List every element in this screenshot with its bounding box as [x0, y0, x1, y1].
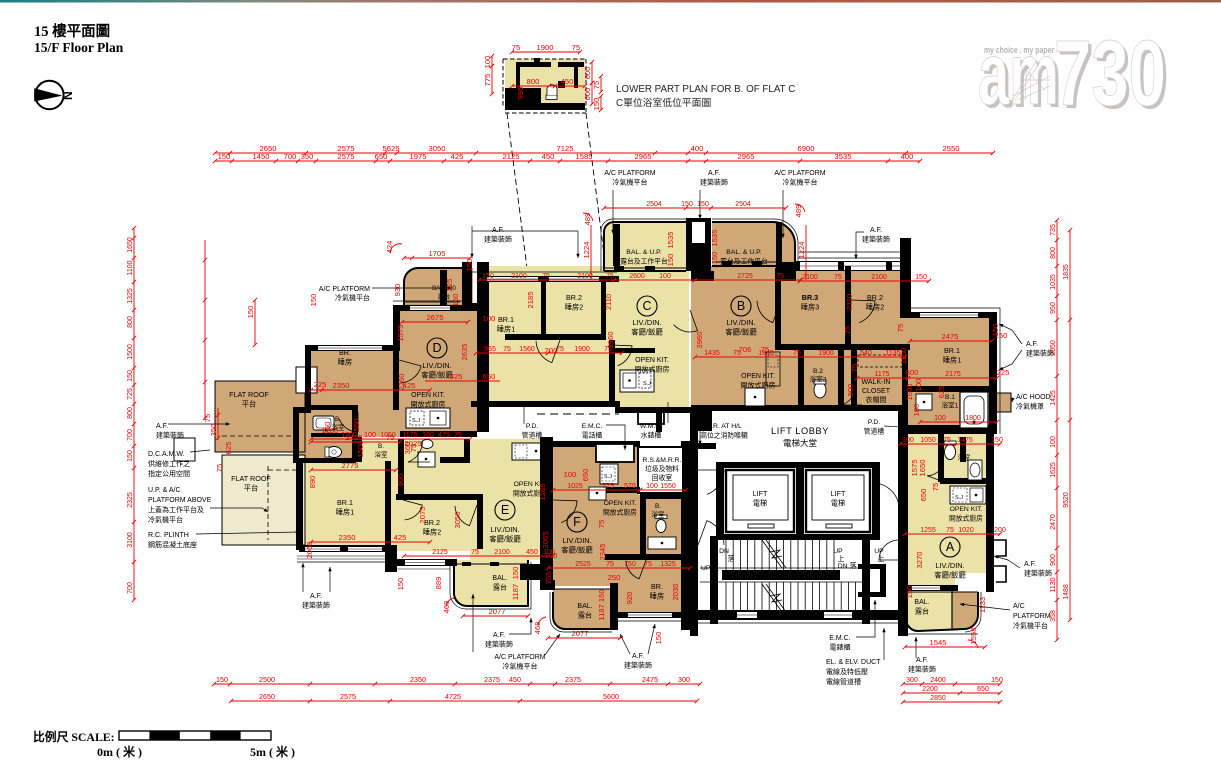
- svg-text:800: 800: [527, 77, 540, 86]
- svg-text:A.F.: A.F.: [708, 170, 720, 177]
- svg-text:2100: 2100: [577, 273, 593, 280]
- svg-text:am: am: [978, 24, 1059, 123]
- svg-text:1535: 1535: [710, 230, 719, 247]
- svg-text:900: 900: [846, 384, 855, 397]
- svg-text:露台: 露台: [915, 606, 929, 615]
- svg-text:回收室: 回收室: [652, 473, 673, 482]
- svg-text:冷氣機平台: 冷氣機平台: [503, 661, 538, 670]
- svg-text:1488: 1488: [1063, 584, 1070, 600]
- svg-text:A.F.: A.F.: [156, 423, 168, 430]
- svg-text:2325: 2325: [127, 492, 134, 508]
- svg-text:450: 450: [509, 675, 521, 684]
- svg-text:冷氣機平台: 冷氣機平台: [148, 515, 183, 524]
- svg-text:700: 700: [127, 582, 134, 594]
- svg-text:2077: 2077: [572, 629, 589, 638]
- svg-text:150: 150: [915, 274, 927, 281]
- svg-text:2110: 2110: [604, 294, 613, 310]
- svg-text:BR.: BR.: [339, 348, 351, 357]
- svg-text:電線管道槽: 電線管道槽: [826, 677, 861, 686]
- svg-text:LIV./DIN.: LIV./DIN.: [562, 536, 591, 545]
- svg-text:225: 225: [445, 279, 454, 292]
- svg-text:2100: 2100: [871, 274, 887, 281]
- svg-text:建築裝飾: 建築裝飾: [862, 234, 890, 243]
- svg-text:E: E: [501, 503, 509, 517]
- svg-text:落: 落: [728, 554, 735, 563]
- svg-text:75: 75: [203, 414, 212, 422]
- svg-text:150: 150: [309, 294, 318, 307]
- svg-text:1050: 1050: [920, 437, 936, 444]
- svg-text:2100: 2100: [802, 274, 818, 281]
- svg-text:2675: 2675: [427, 313, 444, 322]
- svg-text:1325: 1325: [127, 288, 134, 304]
- svg-text:600: 600: [583, 67, 592, 80]
- svg-text:1133: 1133: [978, 597, 987, 613]
- svg-text:75: 75: [834, 274, 842, 281]
- svg-text:2175: 2175: [945, 371, 961, 378]
- svg-text:A.F.: A.F.: [870, 227, 882, 234]
- svg-text:FLAT ROOF: FLAT ROOF: [229, 390, 269, 399]
- svg-text:150: 150: [511, 567, 520, 580]
- svg-text:LIFT: LIFT: [831, 489, 846, 498]
- svg-text:D.C.A.M.W.: D.C.A.M.W.: [148, 451, 185, 458]
- svg-text:100: 100: [646, 483, 658, 490]
- svg-text:2375: 2375: [484, 675, 500, 684]
- svg-text:B.1: B.1: [945, 394, 955, 401]
- svg-text:2075: 2075: [418, 507, 427, 524]
- svg-text:A: A: [946, 540, 955, 554]
- svg-text:1325: 1325: [660, 561, 676, 568]
- svg-text:平台: 平台: [244, 483, 258, 492]
- svg-text:625: 625: [937, 386, 946, 399]
- svg-text:A.F.: A.F.: [310, 593, 322, 600]
- svg-text:1425: 1425: [1050, 390, 1057, 406]
- svg-text:B: B: [737, 299, 745, 313]
- svg-text:2504: 2504: [735, 201, 751, 208]
- svg-text:2030: 2030: [671, 584, 680, 601]
- svg-text:A/C: A/C: [1013, 603, 1025, 610]
- svg-text:S.J: S.J: [412, 418, 420, 424]
- svg-text:浴室: 浴室: [652, 509, 665, 518]
- svg-text:2725: 2725: [737, 273, 753, 280]
- svg-text:9520: 9520: [1063, 492, 1070, 508]
- svg-text:920: 920: [625, 592, 634, 605]
- svg-text:BR.1: BR.1: [498, 315, 514, 324]
- svg-text:1175: 1175: [874, 371, 889, 378]
- svg-text:S.J: S.J: [955, 495, 963, 501]
- svg-text:1835: 1835: [1063, 264, 1070, 280]
- svg-text:管道槽: 管道槽: [522, 430, 543, 439]
- svg-text:建築裝飾: 建築裝飾: [1024, 568, 1052, 577]
- svg-text:150: 150: [905, 586, 914, 599]
- svg-text:75: 75: [604, 346, 612, 353]
- svg-text:1650: 1650: [127, 237, 134, 253]
- svg-text:BAL. & U.P.: BAL. & U.P.: [726, 249, 761, 256]
- svg-text:400: 400: [901, 152, 914, 161]
- svg-text:電錶櫃: 電錶櫃: [830, 642, 851, 651]
- svg-text:上蓋為工作平台及: 上蓋為工作平台及: [148, 505, 204, 514]
- svg-text:1550: 1550: [660, 483, 676, 490]
- svg-text:R.S.&M.R.R.: R.S.&M.R.R.: [643, 457, 682, 464]
- svg-text:2050: 2050: [1050, 340, 1057, 356]
- svg-text:露台及工作平台: 露台及工作平台: [620, 256, 668, 265]
- svg-text:2575: 2575: [338, 152, 355, 161]
- svg-text:965: 965: [484, 346, 496, 353]
- svg-text:睡房3: 睡房3: [801, 302, 819, 311]
- svg-text:LIV./DIN.: LIV./DIN.: [632, 318, 661, 327]
- svg-text:100: 100: [483, 314, 496, 323]
- svg-text:F: F: [573, 515, 581, 529]
- svg-text:4725: 4725: [445, 692, 461, 701]
- svg-text:露台: 露台: [578, 610, 592, 619]
- svg-text:450: 450: [561, 77, 574, 86]
- svg-text:建築裝飾: 建築裝飾: [302, 600, 330, 609]
- svg-text:925: 925: [450, 372, 463, 381]
- svg-text:75: 75: [943, 437, 951, 444]
- svg-text:浴室2: 浴室2: [810, 375, 827, 384]
- svg-text:E.M.C.: E.M.C.: [829, 635, 850, 642]
- svg-text:890: 890: [308, 476, 317, 489]
- svg-text:900: 900: [396, 474, 405, 487]
- svg-text:2350: 2350: [333, 381, 350, 390]
- svg-text:489: 489: [583, 213, 592, 226]
- svg-text:BAL.: BAL.: [577, 603, 592, 610]
- svg-text:客廳/飯廳: 客廳/飯廳: [561, 545, 593, 554]
- svg-text:2077: 2077: [489, 607, 506, 616]
- svg-text:1500: 1500: [356, 441, 365, 458]
- svg-text:358: 358: [1050, 610, 1057, 622]
- svg-text:電梯: 電梯: [831, 499, 845, 508]
- svg-text:開放式廚房: 開放式廚房: [741, 380, 776, 389]
- svg-text:424: 424: [385, 241, 394, 254]
- svg-text:75: 75: [761, 345, 769, 354]
- svg-text:U.P. & A/C: U.P. & A/C: [148, 487, 181, 494]
- svg-text:P.D.: P.D.: [868, 419, 880, 426]
- svg-text:3050: 3050: [429, 144, 446, 153]
- svg-text:LIV./DIN.: LIV./DIN.: [490, 525, 519, 534]
- svg-text:75: 75: [606, 273, 614, 280]
- svg-text:FLAT ROOF: FLAT ROOF: [231, 474, 271, 483]
- svg-text:650: 650: [977, 686, 989, 693]
- svg-text:1575: 1575: [396, 325, 405, 342]
- svg-text:供維修工作之: 供維修工作之: [148, 459, 190, 468]
- svg-text:450: 450: [526, 549, 538, 556]
- svg-text:OPEN KIT.: OPEN KIT.: [950, 506, 983, 513]
- svg-text:客廳/飯廳: 客廳/飯廳: [489, 534, 521, 543]
- svg-text:D: D: [432, 341, 441, 355]
- svg-text:1035: 1035: [1050, 274, 1057, 290]
- svg-text:開放式廚房: 開放式廚房: [603, 507, 637, 516]
- svg-text:706: 706: [739, 345, 752, 354]
- svg-text:1900: 1900: [818, 350, 834, 357]
- svg-text:建築裝飾: 建築裝飾: [485, 639, 513, 648]
- svg-text:1545: 1545: [930, 638, 947, 647]
- svg-text:2525: 2525: [575, 561, 591, 568]
- svg-text:1700: 1700: [322, 426, 339, 435]
- svg-text:2060: 2060: [305, 542, 314, 559]
- svg-text:650: 650: [581, 469, 590, 482]
- svg-text:75: 75: [896, 324, 905, 332]
- svg-text:1625: 1625: [1050, 462, 1057, 478]
- svg-text:1800: 1800: [965, 415, 981, 422]
- svg-text:DN 落: DN 落: [838, 561, 857, 570]
- svg-text:150: 150: [681, 201, 693, 208]
- svg-text:100: 100: [422, 432, 434, 439]
- svg-text:A.F.: A.F.: [493, 632, 505, 639]
- svg-text:150: 150: [216, 675, 228, 684]
- svg-text:睡房1: 睡房1: [497, 324, 515, 333]
- svg-text:OPEN KIT.: OPEN KIT.: [741, 373, 775, 380]
- svg-text:R.C. PLINTH: R.C. PLINTH: [148, 532, 189, 539]
- svg-text:UP: UP: [833, 548, 843, 555]
- svg-text:LIV./DIN.: LIV./DIN.: [726, 318, 755, 327]
- svg-text:75: 75: [597, 520, 606, 528]
- svg-text:H.R. AT H/L: H.R. AT H/L: [706, 423, 742, 430]
- svg-text:150: 150: [127, 450, 134, 462]
- svg-text:管道槽: 管道槽: [864, 426, 885, 435]
- svg-text:上: 上: [838, 554, 845, 563]
- svg-text:2475: 2475: [942, 332, 959, 341]
- svg-text:EL. & ELV. DUCT: EL. & ELV. DUCT: [826, 659, 881, 666]
- svg-text:2125: 2125: [503, 152, 520, 161]
- svg-text:1705: 1705: [429, 249, 446, 258]
- svg-text:垃圾及物料: 垃圾及物料: [645, 464, 679, 473]
- svg-text:A/C PLATFORM: A/C PLATFORM: [774, 170, 825, 177]
- svg-text:5600: 5600: [603, 692, 619, 701]
- svg-text:2200: 2200: [922, 686, 938, 693]
- svg-text:75: 75: [776, 273, 784, 280]
- svg-text:A/C PLATFORM: A/C PLATFORM: [494, 654, 545, 661]
- svg-text:100: 100: [564, 470, 577, 479]
- svg-text:150: 150: [482, 273, 494, 280]
- svg-text:1558: 1558: [969, 628, 978, 645]
- svg-text:150: 150: [465, 259, 474, 272]
- svg-text:1435: 1435: [704, 350, 720, 357]
- svg-text:100: 100: [659, 273, 671, 280]
- svg-text:1025: 1025: [567, 483, 583, 490]
- svg-text:冷氣機罩: 冷氣機罩: [1016, 401, 1044, 410]
- svg-text:75: 75: [503, 346, 511, 353]
- svg-text:800: 800: [127, 316, 134, 328]
- svg-text:489: 489: [794, 205, 803, 218]
- svg-text:2850: 2850: [930, 695, 946, 702]
- svg-text:100: 100: [1050, 436, 1057, 448]
- svg-text:75: 75: [542, 273, 550, 280]
- svg-text:2965: 2965: [738, 152, 755, 161]
- svg-text:DN: DN: [719, 548, 729, 555]
- svg-text:225: 225: [997, 368, 1010, 377]
- svg-text:開放式廚房: 開放式廚房: [411, 399, 446, 408]
- svg-text:建築裝飾: 建築裝飾: [700, 177, 728, 186]
- svg-text:900: 900: [1050, 554, 1057, 566]
- svg-text:350: 350: [209, 424, 218, 437]
- svg-text:1650: 1650: [918, 460, 927, 477]
- svg-text:2375: 2375: [565, 675, 581, 684]
- svg-text:浴室: 浴室: [375, 449, 388, 458]
- svg-text:S.J: S.J: [604, 474, 612, 480]
- svg-text:75: 75: [512, 43, 520, 52]
- svg-text:1900: 1900: [537, 43, 554, 52]
- svg-text:露台及工作平台: 露台及工作平台: [720, 256, 768, 265]
- svg-text:425: 425: [394, 533, 407, 542]
- svg-text:2600: 2600: [629, 273, 645, 280]
- svg-text:3050: 3050: [453, 512, 462, 529]
- svg-text:PLATFORM ABOVE: PLATFORM ABOVE: [148, 497, 212, 504]
- svg-text:露台: 露台: [438, 293, 450, 301]
- svg-text:468: 468: [442, 601, 451, 614]
- svg-text:A/C PLATFORM: A/C PLATFORM: [319, 286, 370, 293]
- svg-text:睡房: 睡房: [650, 591, 664, 600]
- svg-text:650: 650: [919, 489, 928, 502]
- svg-text:100: 100: [934, 415, 946, 422]
- svg-text:N: N: [61, 91, 75, 100]
- svg-text:建築裝飾: 建築裝飾: [156, 430, 184, 439]
- svg-text:2775: 2775: [342, 461, 359, 470]
- svg-text:B.: B.: [961, 446, 967, 453]
- svg-text:150: 150: [396, 578, 405, 591]
- svg-text:75: 75: [471, 549, 479, 556]
- svg-text:425: 425: [451, 152, 464, 161]
- svg-text:1224: 1224: [582, 242, 591, 259]
- svg-text:150: 150: [697, 201, 709, 208]
- svg-text:800: 800: [906, 368, 919, 377]
- svg-text:A.F.: A.F.: [916, 657, 928, 664]
- svg-text:2470: 2470: [1050, 514, 1057, 530]
- svg-text:75: 75: [843, 326, 852, 334]
- svg-text:75: 75: [606, 561, 614, 568]
- svg-text:睡房2: 睡房2: [866, 302, 884, 311]
- svg-text:1050: 1050: [380, 432, 396, 439]
- svg-text:衣帽間: 衣帽間: [866, 395, 887, 404]
- svg-text:1585: 1585: [576, 152, 593, 161]
- svg-text:150: 150: [127, 370, 134, 382]
- svg-text:3270: 3270: [915, 552, 924, 569]
- svg-text:1187 150: 1187 150: [597, 589, 606, 620]
- svg-text:2185: 2185: [526, 292, 535, 309]
- svg-text:650: 650: [375, 152, 388, 161]
- svg-text:水錶櫃: 水錶櫃: [641, 430, 662, 439]
- svg-text:1020: 1020: [958, 527, 974, 534]
- svg-text:550: 550: [352, 419, 361, 432]
- svg-text:775: 775: [602, 483, 614, 490]
- svg-text:75: 75: [409, 444, 418, 452]
- svg-text:2475: 2475: [642, 675, 658, 684]
- svg-text:冷氣機平台: 冷氣機平台: [783, 177, 818, 186]
- svg-text:比例尺 SCALE:: 比例尺 SCALE:: [33, 730, 115, 744]
- svg-text:客廳/飯廳: 客廳/飯廳: [421, 370, 453, 379]
- svg-text:625: 625: [224, 442, 233, 455]
- svg-text:468: 468: [533, 622, 542, 635]
- svg-text:425: 425: [403, 381, 416, 390]
- svg-text:995: 995: [516, 87, 525, 100]
- svg-text:1187: 1187: [511, 584, 520, 600]
- svg-text:2400: 2400: [930, 677, 946, 684]
- svg-text:1255: 1255: [920, 527, 936, 534]
- svg-text:100: 100: [483, 56, 492, 69]
- svg-text:W.M.C.: W.M.C.: [640, 423, 662, 430]
- svg-text:1535: 1535: [666, 232, 675, 249]
- svg-text:6900: 6900: [798, 144, 815, 153]
- svg-text:150: 150: [592, 98, 601, 111]
- svg-text:730: 730: [1054, 21, 1166, 125]
- svg-text:650: 650: [483, 372, 496, 381]
- svg-text:200: 200: [994, 527, 1006, 534]
- svg-text:LIFT LOBBY: LIFT LOBBY: [771, 426, 829, 436]
- svg-text:1975: 1975: [410, 152, 427, 161]
- svg-text:2350: 2350: [410, 675, 426, 684]
- svg-text:755: 755: [544, 572, 553, 585]
- svg-text:2965: 2965: [635, 152, 652, 161]
- svg-text:建築裝飾: 建築裝飾: [484, 234, 512, 243]
- svg-text:75: 75: [793, 350, 801, 357]
- svg-text:250: 250: [608, 573, 621, 582]
- svg-text:電話櫃: 電話櫃: [582, 430, 603, 439]
- svg-text:鋼筋混凝土底座: 鋼筋混凝土底座: [148, 540, 197, 549]
- svg-text:75: 75: [556, 346, 564, 353]
- svg-text:2650: 2650: [259, 692, 275, 701]
- svg-text:1600: 1600: [905, 384, 914, 401]
- svg-text:BR.2: BR.2: [566, 293, 582, 302]
- svg-text:OPEN KIT.: OPEN KIT.: [604, 500, 637, 507]
- svg-text:475: 475: [438, 432, 450, 439]
- svg-text:1500: 1500: [127, 344, 134, 360]
- svg-text:100: 100: [914, 379, 923, 392]
- svg-text:露台: 露台: [493, 582, 507, 591]
- svg-text:冷氣機平台: 冷氣機平台: [335, 293, 370, 302]
- svg-text:平台: 平台: [242, 399, 256, 408]
- svg-text:2504: 2504: [646, 201, 662, 208]
- svg-text:開放式廚房: 開放式廚房: [949, 513, 983, 522]
- svg-text:2345: 2345: [598, 544, 607, 561]
- svg-text:2500: 2500: [259, 675, 275, 684]
- svg-text:S.J: S.J: [643, 381, 651, 387]
- svg-text:5m ( 米 ): 5m ( 米 ): [250, 744, 295, 759]
- svg-text:WALK-IN: WALK-IN: [862, 379, 891, 386]
- svg-text:7125: 7125: [557, 144, 574, 153]
- svg-text:3100: 3100: [127, 532, 134, 548]
- svg-text:睡房: 睡房: [338, 357, 352, 366]
- svg-text:150: 150: [654, 632, 663, 645]
- svg-text:電線及特低壓: 電線及特低壓: [826, 667, 868, 676]
- svg-text:BR.2: BR.2: [867, 293, 883, 302]
- svg-text:A.F.: A.F.: [1026, 341, 1038, 348]
- svg-text:BAL.: BAL.: [492, 575, 507, 582]
- svg-text:A.F.: A.F.: [632, 653, 644, 660]
- svg-text:BAL. & U.P.: BAL. & U.P.: [626, 249, 661, 256]
- svg-text:150: 150: [218, 152, 231, 161]
- svg-text:建築裝飾: 建築裝飾: [908, 664, 936, 673]
- svg-text:LOWER PART PLAN FOR B. OF FLAT: LOWER PART PLAN FOR B. OF FLAT C: [616, 84, 795, 95]
- svg-text:1450: 1450: [253, 152, 270, 161]
- svg-text:OPEN KIT.: OPEN KIT.: [635, 357, 669, 364]
- svg-text:BAL.: BAL.: [914, 599, 929, 606]
- svg-text:150: 150: [666, 254, 675, 267]
- svg-text:C: C: [642, 299, 651, 313]
- svg-text:889: 889: [434, 577, 443, 590]
- svg-text:建築裝飾: 建築裝飾: [624, 660, 652, 669]
- svg-text:540: 540: [860, 350, 872, 357]
- svg-text:2065: 2065: [541, 532, 550, 549]
- svg-text:B.: B.: [378, 443, 384, 450]
- svg-text:指定公用空間: 指定公用空間: [148, 469, 190, 478]
- svg-text:LIV./DIN.: LIV./DIN.: [935, 561, 964, 570]
- svg-text:150: 150: [991, 324, 1000, 337]
- svg-text:800: 800: [1050, 247, 1057, 259]
- svg-text:150: 150: [991, 437, 1003, 444]
- svg-text:2100: 2100: [511, 273, 527, 280]
- svg-text:350: 350: [301, 152, 314, 161]
- svg-text:A.F.: A.F.: [1024, 561, 1036, 568]
- svg-text:75: 75: [592, 81, 601, 89]
